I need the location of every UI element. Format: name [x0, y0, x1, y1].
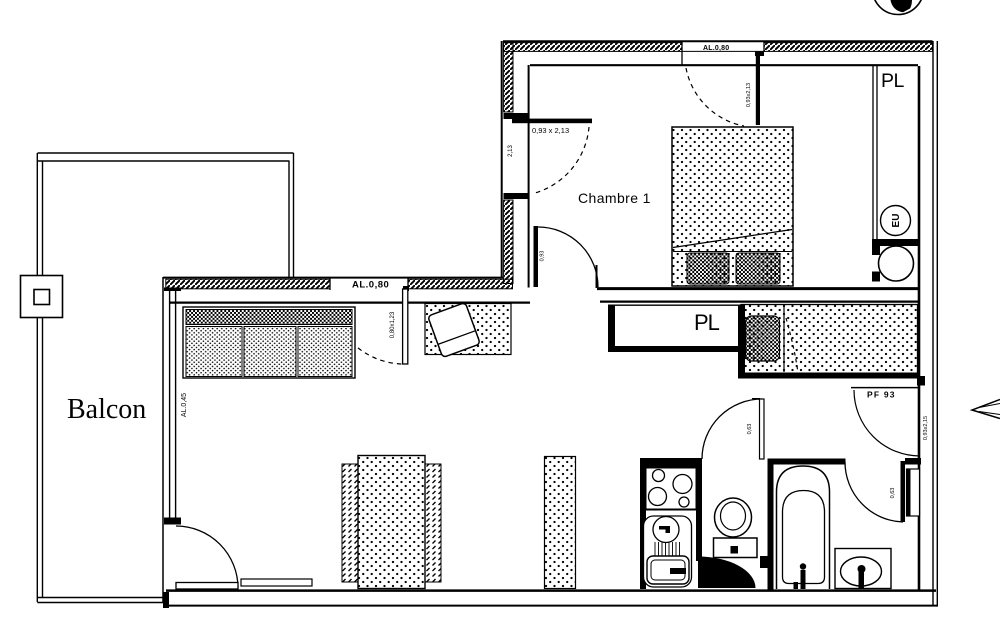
svg-text:0,80x1,23: 0,80x1,23 [390, 311, 396, 338]
svg-text:0,63: 0,63 [890, 488, 896, 499]
svg-text:AL.0,80: AL.0,80 [352, 280, 389, 291]
svg-text:AL.0,80: AL.0,80 [703, 45, 729, 52]
svg-text:0,63: 0,63 [747, 424, 753, 435]
svg-text:0,93x2,13: 0,93x2,13 [746, 83, 752, 107]
svg-text:2,13: 2,13 [508, 145, 514, 157]
svg-text:0,93x2,15: 0,93x2,15 [923, 416, 929, 440]
svg-text:PL: PL [881, 70, 905, 92]
svg-text:0,93: 0,93 [540, 251, 546, 262]
svg-text:PL: PL [694, 310, 720, 335]
svg-text:PF 93: PF 93 [867, 390, 896, 400]
svg-text:AL.0,45: AL.0,45 [181, 393, 188, 417]
svg-text:0,93 x 2,13: 0,93 x 2,13 [532, 126, 569, 135]
svg-text:Chambre 1: Chambre 1 [578, 190, 651, 206]
svg-text:Balcon: Balcon [67, 394, 146, 425]
svg-text:EU: EU [891, 214, 902, 228]
